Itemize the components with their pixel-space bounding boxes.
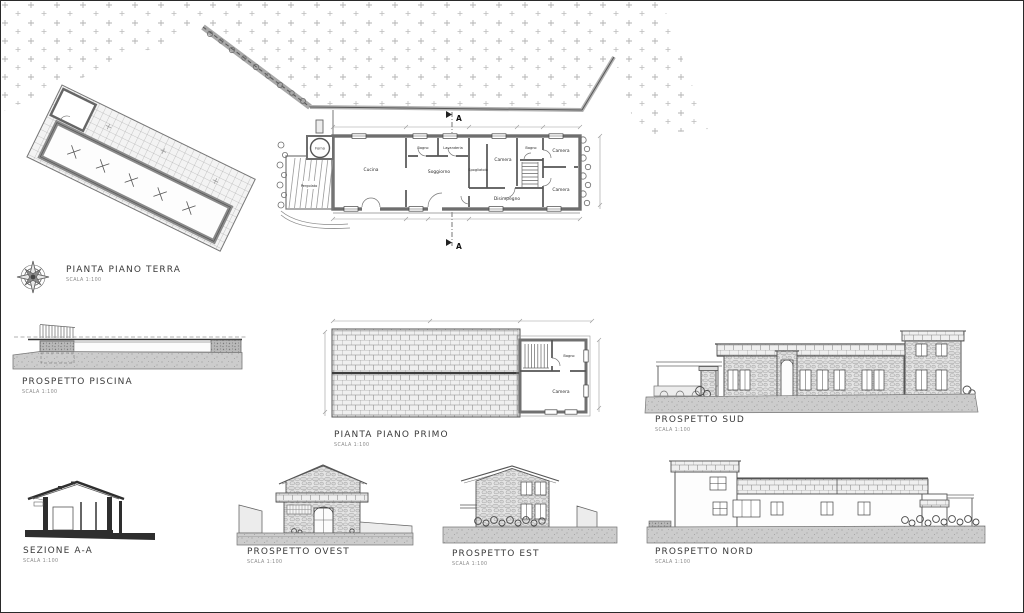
section-ground bbox=[25, 530, 155, 540]
title-east-elevation: PROSPETTO EST bbox=[452, 549, 540, 559]
pool-wall-right bbox=[211, 340, 241, 353]
east-elevation: PROSPETTO EST SCALA 1:100 bbox=[443, 466, 617, 567]
est-side-eave bbox=[460, 505, 477, 508]
ground-floor-plan: A A bbox=[277, 111, 602, 251]
title-south-elevation: PROSPETTO SUD bbox=[655, 415, 745, 425]
compass-center bbox=[31, 275, 36, 280]
nord-roof-band bbox=[737, 479, 928, 494]
nord-ground bbox=[647, 526, 985, 543]
first-floor-plan: Bagno Camera PIANTA PIANO PRIMO SCALA 1:… bbox=[323, 319, 601, 448]
section-wall-left bbox=[43, 497, 48, 530]
ovest-eave-band bbox=[276, 493, 368, 502]
title-pool-elevation: PROSPETTO PISCINA bbox=[22, 377, 133, 387]
room-label-camera-ne: Camera bbox=[552, 148, 570, 154]
section-wall-right bbox=[107, 497, 112, 530]
title-north-elevation: PROSPETTO NORD bbox=[655, 547, 754, 557]
forno: Forno bbox=[307, 120, 333, 159]
sud-tower bbox=[900, 331, 966, 398]
room-label-disimpegno: Disimpegno bbox=[494, 196, 520, 202]
section-door bbox=[53, 507, 73, 530]
pool-face bbox=[74, 342, 211, 352]
scale-south-elevation: SCALA 1:100 bbox=[655, 427, 691, 433]
terrace-lines bbox=[281, 211, 580, 229]
first-floor-rooms bbox=[520, 340, 586, 412]
sud-chimney-cap bbox=[699, 367, 718, 371]
room-label-bagno: Bagno bbox=[417, 146, 428, 150]
title-west-elevation: PROSPETTO OVEST bbox=[247, 547, 350, 557]
section-flag-bottom bbox=[446, 239, 452, 246]
compass-rose bbox=[17, 261, 49, 293]
architectural-drawing-sheet: A A bbox=[0, 0, 1024, 613]
ovest-trellis bbox=[287, 505, 311, 514]
scale-east-elevation: SCALA 1:100 bbox=[452, 561, 488, 567]
section-marker-bottom: A bbox=[456, 242, 462, 251]
nord-tower-window bbox=[710, 477, 726, 490]
scale-ground-floor: SCALA 1:100 bbox=[66, 277, 102, 283]
sud-door bbox=[775, 351, 799, 398]
site-plan: A A bbox=[1, 1, 708, 293]
room-label-camera-se: Camera bbox=[552, 187, 570, 193]
scale-north-elevation: SCALA 1:100 bbox=[655, 559, 691, 565]
room-label-lavanderia: Lavanderia bbox=[443, 146, 462, 150]
ovest-left-pillar bbox=[239, 505, 262, 533]
section-wall-far-right bbox=[119, 501, 122, 536]
west-elevation: PROSPETTO OVEST SCALA 1:100 bbox=[237, 465, 413, 565]
pool-fence bbox=[40, 325, 75, 339]
ovest-right-wall bbox=[360, 522, 412, 534]
room-label-bagno-primo: Bagno bbox=[563, 354, 574, 358]
room-label-spogliatoio: Spogliatoio bbox=[468, 168, 488, 172]
nord-tower-wall bbox=[675, 472, 737, 527]
title-ground-floor: PIANTA PIANO TERRA bbox=[66, 265, 181, 275]
scale-west-elevation: SCALA 1:100 bbox=[247, 559, 283, 565]
scale-pool-elevation: SCALA 1:100 bbox=[22, 389, 58, 395]
pergolato: Pergolato bbox=[286, 156, 333, 209]
ovest-arch-window bbox=[314, 507, 333, 533]
room-label-cucina: Cucina bbox=[364, 167, 379, 173]
scale-first-floor: SCALA 1:100 bbox=[334, 442, 370, 448]
room-label-pergolato: Pergolato bbox=[301, 184, 318, 188]
pool-plan bbox=[27, 85, 255, 251]
title-first-floor: PIANTA PIANO PRIMO bbox=[334, 430, 449, 440]
forno-chimney bbox=[316, 120, 323, 133]
room-label-camera-mid: Camera bbox=[494, 157, 512, 163]
section-flag-top bbox=[446, 111, 452, 118]
pool-elevation: PROSPETTO PISCINA SCALA 1:100 bbox=[13, 325, 246, 396]
ovest-gable bbox=[286, 466, 360, 493]
est-right-pillar bbox=[577, 506, 597, 528]
north-elevation: PROSPETTO NORD SCALA 1:100 bbox=[647, 461, 985, 565]
nord-tower-roof bbox=[671, 461, 739, 472]
pool-ground bbox=[13, 352, 242, 370]
room-label-bagno-piccolo: Bagno bbox=[525, 146, 536, 150]
est-ground bbox=[443, 527, 617, 543]
south-elevation: PROSPETTO SUD SCALA 1:100 bbox=[645, 331, 978, 433]
section-marker-top: A bbox=[456, 114, 462, 123]
title-section-aa: SEZIONE A-A bbox=[23, 546, 93, 556]
sud-ground bbox=[645, 394, 978, 413]
room-label-camera-primo: Camera bbox=[552, 389, 570, 395]
section-aa: SEZIONE A-A SCALA 1:100 bbox=[23, 482, 155, 565]
room-label-soggiorno: Soggiorno bbox=[428, 169, 450, 175]
scale-section-aa: SCALA 1:100 bbox=[23, 558, 59, 564]
sud-roof-band bbox=[717, 344, 907, 356]
ovest-terrace bbox=[237, 533, 413, 545]
drawing-sheet-svg: A A bbox=[0, 0, 1024, 613]
room-label-forno: Forno bbox=[315, 147, 325, 151]
nord-left-step bbox=[649, 521, 671, 527]
